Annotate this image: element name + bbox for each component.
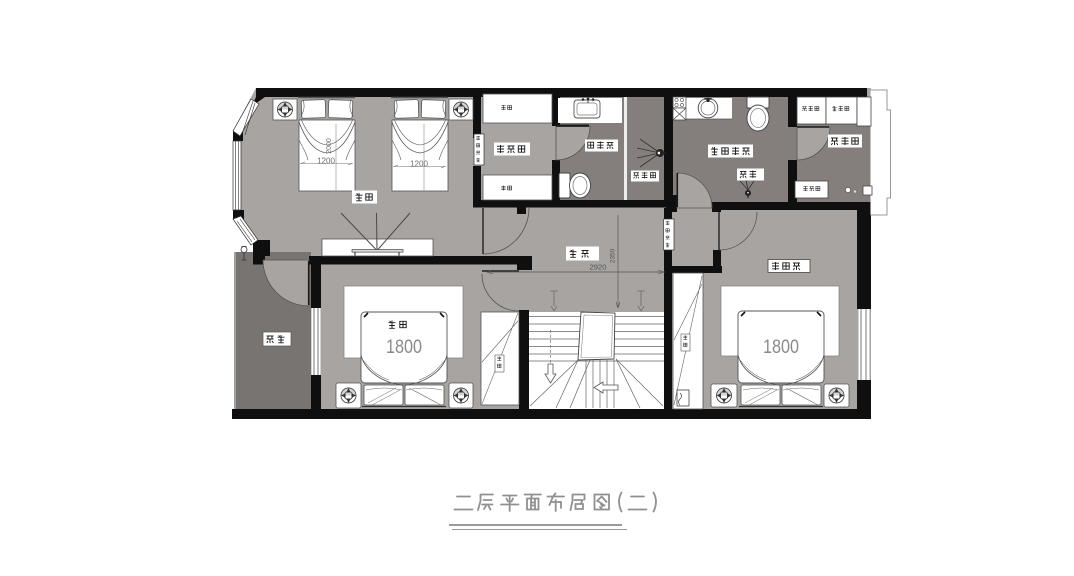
svg-text:2920: 2920 xyxy=(590,265,607,272)
svg-text:1200: 1200 xyxy=(410,159,428,169)
svg-text:2000: 2000 xyxy=(326,138,333,154)
svg-text:2350: 2350 xyxy=(610,248,617,263)
svg-text:1800: 1800 xyxy=(386,337,422,358)
svg-text:1800: 1800 xyxy=(763,337,799,358)
svg-text:1200: 1200 xyxy=(317,156,335,166)
